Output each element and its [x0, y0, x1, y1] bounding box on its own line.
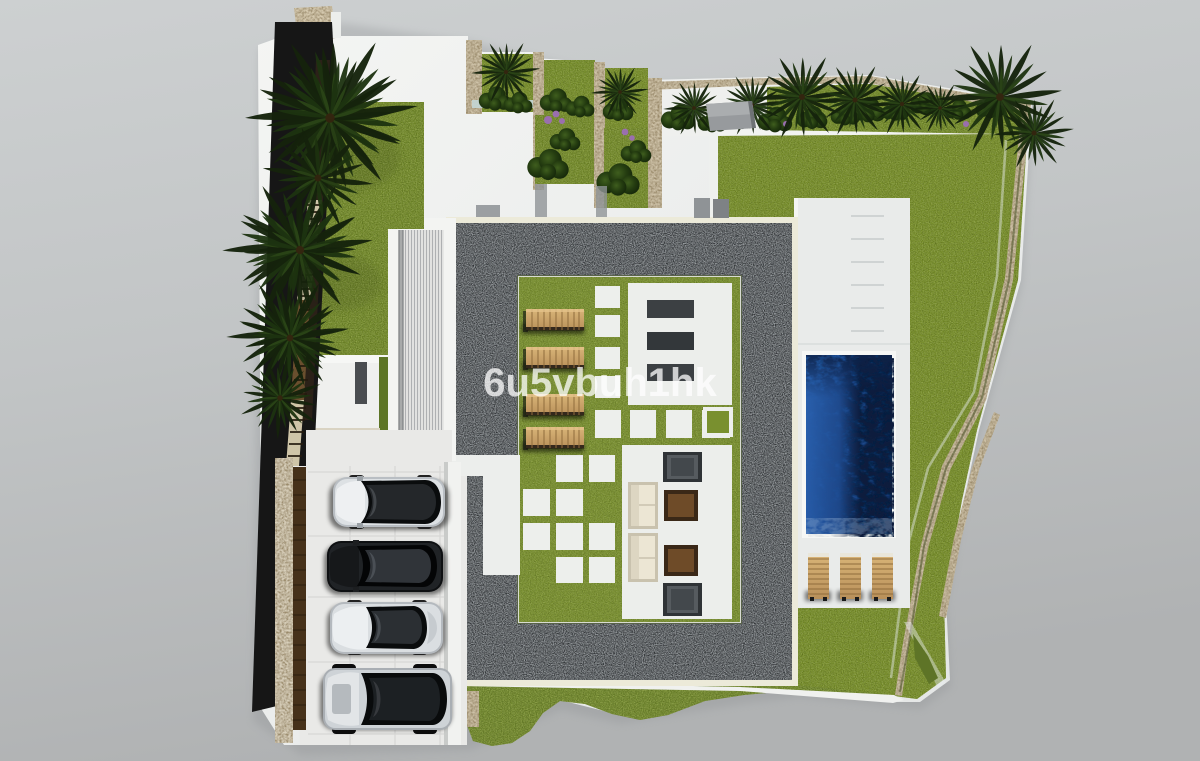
svg-text:6u5vbuh1hk: 6u5vbuh1hk [483, 361, 717, 405]
